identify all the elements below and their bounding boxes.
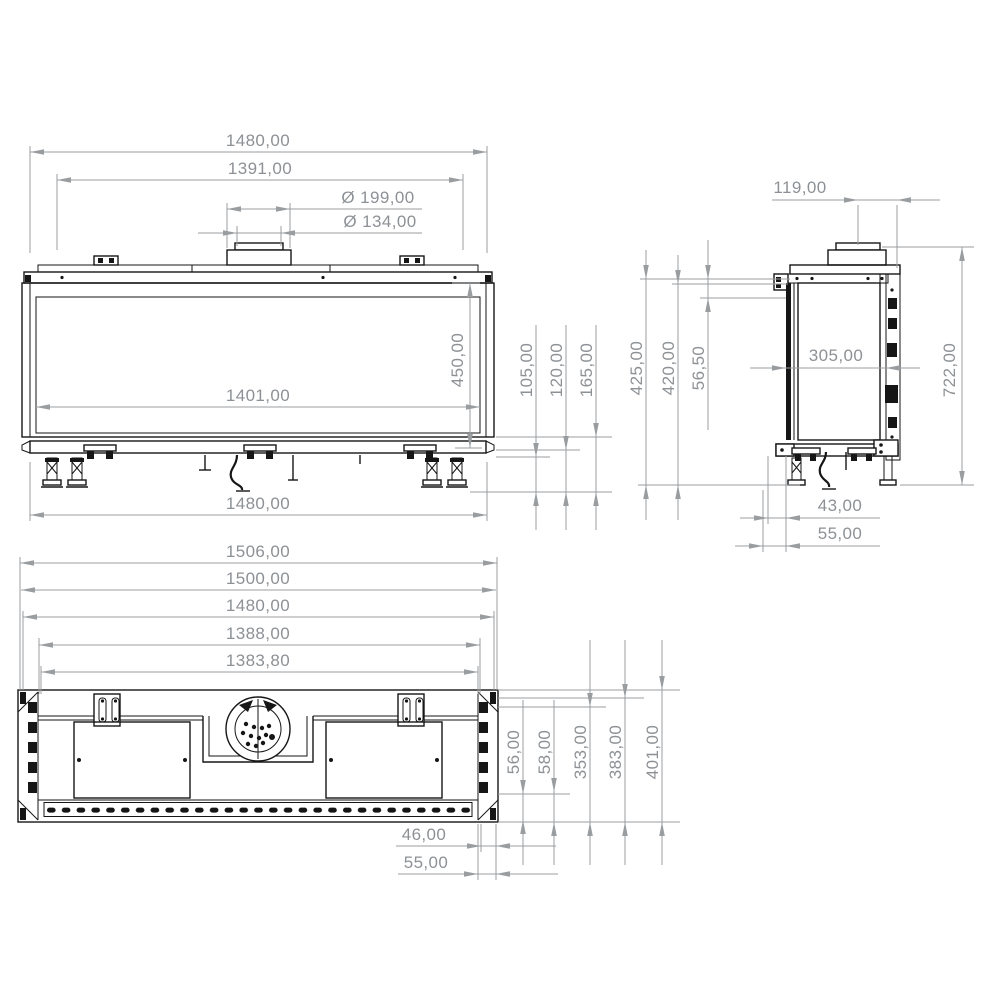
- dim-label-plan-edge-b: 55,00: [404, 853, 449, 872]
- dim-label-front-glass-width: 1401,00: [226, 386, 290, 405]
- foot: [421, 458, 443, 487]
- dim-label-plan-depth-d: 383,00: [606, 725, 625, 779]
- dim-front-glass-width: 1401,00: [36, 386, 480, 407]
- dim-label-front-offset-a: 105,00: [517, 343, 536, 397]
- plan-access-panel-left: [74, 722, 190, 798]
- dim-label-side-overall-height: 722,00: [940, 343, 959, 397]
- dim-label-plan-depth-b: 58,00: [535, 730, 554, 775]
- plan-mount-bracket-right: [398, 694, 424, 726]
- fireplace-dimension-drawing: 1480,00 1391,00 Ø 199,00 Ø: [0, 0, 1000, 1000]
- dim-label-side-top-gap: 56,50: [689, 346, 708, 391]
- front-view: 1480,00 1391,00 Ø 199,00 Ø: [22, 131, 612, 530]
- dim-plan-width-stack: 1506,00 1500,00 1480,00 1388,00 1383,80: [20, 542, 497, 694]
- dim-label-side-depth: 305,00: [809, 346, 863, 365]
- plan-mount-bracket-left: [94, 694, 120, 726]
- dim-plan-depths: 56,00 58,00 353,00 383,00 401,00: [498, 640, 680, 865]
- dim-label-front-flue-outer: Ø 199,00: [341, 188, 414, 207]
- front-hanger-clips: [84, 445, 436, 459]
- dim-label-side-height-a: 425,00: [627, 341, 646, 395]
- front-top-bracket-left: [94, 256, 118, 265]
- side-flue-collar: [828, 243, 886, 265]
- dim-label-plan-depth-c: 353,00: [571, 725, 590, 779]
- side-view: 119,00 425,00 420,00 56,50: [627, 178, 974, 552]
- dim-label-plan-width-a: 1506,00: [226, 542, 290, 561]
- side-dims: 119,00 425,00 420,00 56,50: [627, 178, 974, 552]
- plan-flue-ring: [226, 697, 290, 761]
- dim-label-front-base-width: 1480,00: [226, 494, 290, 513]
- dim-label-front-offset-c: 165,00: [577, 343, 596, 397]
- dim-label-plan-depth-e: 401,00: [643, 725, 662, 779]
- dim-label-plan-depth-a: 56,00: [504, 730, 523, 775]
- dim-front-glass-height: 450,00: [448, 283, 482, 448]
- front-body: [22, 283, 494, 437]
- dim-label-side-height-b: 420,00: [659, 341, 678, 395]
- plan-right-clips: [479, 702, 488, 793]
- dim-front-flue-inner: Ø 134,00: [198, 212, 422, 246]
- dim-label-side-foot-a: 43,00: [818, 496, 863, 515]
- foot: [446, 458, 468, 487]
- foot: [66, 458, 88, 487]
- front-top-bracket-right: [400, 256, 424, 265]
- foot: [41, 458, 63, 487]
- technical-drawing-page: 1480,00 1391,00 Ø 199,00 Ø: [0, 0, 1000, 1000]
- side-top-plates: [774, 265, 900, 290]
- dim-label-front-flue-inner: Ø 134,00: [343, 212, 416, 231]
- front-top-plates: [24, 265, 492, 283]
- dim-label-side-foot-b: 55,00: [818, 524, 863, 543]
- front-dims: 1480,00 1391,00 Ø 199,00 Ø: [30, 131, 612, 530]
- dim-front-offsets: 105,00 120,00 165,00: [470, 325, 612, 530]
- dim-label-front-glass-height: 450,00: [448, 333, 467, 387]
- dim-label-front-inner-top: 1391,00: [228, 159, 292, 178]
- plan-left-clips: [28, 702, 37, 793]
- side-body: [786, 274, 900, 460]
- dim-label-front-offset-b: 120,00: [547, 343, 566, 397]
- dim-label-side-flue-offset: 119,00: [773, 178, 826, 197]
- dim-plan-edges: 46,00 55,00: [396, 824, 558, 880]
- dim-label-plan-edge-a: 46,00: [402, 825, 447, 844]
- front-flue-collar: [227, 243, 291, 265]
- front-feet: [41, 458, 468, 487]
- plan-access-panel-right: [326, 722, 442, 798]
- front-hanging-fittings: [199, 455, 360, 491]
- plan-vent-strip: [38, 800, 478, 817]
- dim-label-plan-width-c: 1480,00: [226, 596, 290, 615]
- dim-label-front-overall-top: 1480,00: [226, 131, 290, 150]
- dim-label-plan-width-b: 1500,00: [226, 569, 290, 588]
- dim-front-base-width: 1480,00: [30, 462, 487, 521]
- plan-view: 1506,00 1500,00 1480,00 1388,00 1383,80: [18, 542, 680, 880]
- dim-label-plan-width-e: 1383,80: [226, 651, 290, 670]
- dim-label-plan-width-d: 1388,00: [226, 624, 290, 643]
- dim-front-overall-top: 1480,00: [30, 131, 487, 253]
- side-feet: [788, 452, 896, 489]
